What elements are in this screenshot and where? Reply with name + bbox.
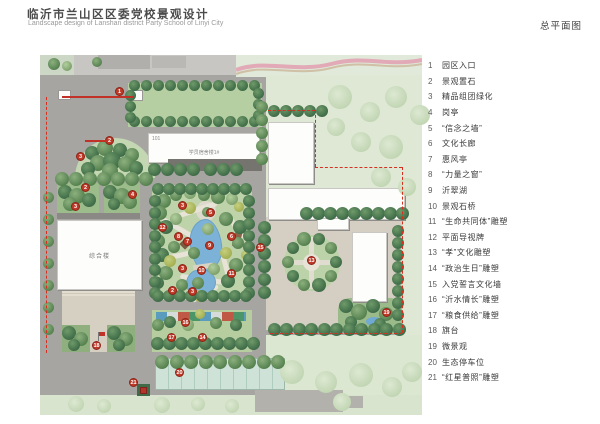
plan-marker-5: 5 — [206, 208, 215, 217]
legend-item: 10景观石桥 — [428, 198, 596, 214]
tree-icon — [189, 116, 200, 127]
tree-icon — [149, 241, 161, 253]
tree-icon — [228, 355, 242, 369]
tree-icon — [43, 236, 54, 247]
entry-red-line — [85, 140, 108, 142]
tree-icon — [165, 116, 176, 127]
tree-icon — [164, 255, 176, 267]
legend-item: 9沂翠湖 — [428, 183, 596, 199]
tree-icon — [184, 355, 198, 369]
building-comprehensive: 综合楼 — [57, 220, 142, 290]
legend-number: 1 — [428, 61, 442, 70]
tree-icon — [68, 339, 80, 351]
site-boundary — [270, 333, 402, 334]
building-east-main-wing — [317, 218, 349, 230]
tree-icon — [292, 105, 304, 117]
tree-icon — [360, 207, 373, 220]
tree-icon — [213, 116, 224, 127]
tree-icon — [125, 101, 136, 112]
legend-label: 生态停车位 — [442, 357, 485, 368]
tree-icon — [360, 102, 380, 122]
legend-number: 14 — [428, 264, 442, 273]
plan-marker-13: 13 — [307, 256, 316, 265]
entrance-gate-line — [62, 96, 134, 98]
tree-icon — [243, 276, 255, 288]
offsite-landscape-ribbon — [236, 55, 422, 77]
legend-item: 16“沂水情长”雕塑 — [428, 292, 596, 308]
legend-number: 16 — [428, 295, 442, 304]
tree-icon — [189, 80, 200, 91]
tree-icon — [199, 355, 213, 369]
tree-icon — [230, 319, 242, 331]
tree-icon — [327, 118, 345, 136]
legend-label: 平面导视牌 — [442, 232, 485, 243]
offsite-building — [255, 390, 343, 412]
legend-number: 3 — [428, 92, 442, 101]
guard-booth — [58, 90, 71, 100]
tree-icon — [125, 90, 136, 101]
tree-icon — [325, 242, 337, 254]
legend-item: 5“信念之墙” — [428, 120, 596, 136]
tree-icon — [258, 286, 271, 299]
tree-icon — [348, 207, 361, 220]
legend-item: 4岗亭 — [428, 105, 596, 121]
legend-label: “粮食供给”雕塑 — [442, 310, 499, 321]
tree-icon — [282, 256, 294, 268]
tree-icon — [154, 397, 170, 413]
site-boundary — [402, 167, 403, 333]
tree-icon — [243, 218, 255, 230]
legend-item: 7惠风亭 — [428, 152, 596, 168]
tree-icon — [258, 221, 271, 234]
tree-icon — [256, 140, 268, 152]
tree-icon — [141, 80, 152, 91]
plan-marker-18: 18 — [92, 341, 101, 350]
tree-icon — [271, 355, 285, 369]
legend-label: 惠风亭 — [442, 154, 468, 165]
legend-item: 12平面导视牌 — [428, 230, 596, 246]
legend-number: 17 — [428, 311, 442, 320]
plan-marker-3: 3 — [71, 202, 80, 211]
tree-icon — [225, 80, 236, 91]
plan-marker-14: 14 — [198, 333, 207, 342]
tree-icon — [258, 260, 271, 273]
legend-label: “政治生日”雕塑 — [442, 263, 499, 274]
plan-marker-16: 16 — [181, 318, 190, 327]
legend-label: 微景观 — [442, 341, 468, 352]
tree-icon — [148, 163, 161, 176]
tree-icon — [220, 247, 232, 259]
legend-item: 15入党誓言文化墙 — [428, 276, 596, 292]
legend-label: “力量之窗” — [442, 169, 482, 180]
tree-icon — [325, 270, 337, 282]
tree-icon — [204, 163, 217, 176]
tree-icon — [68, 396, 84, 412]
legend-number: 12 — [428, 233, 442, 242]
tree-icon — [297, 232, 311, 246]
legend-label: 景观置石 — [442, 76, 476, 87]
plan-type-label: 总平面图 — [540, 18, 582, 32]
site-boundary — [46, 97, 47, 353]
tree-icon — [153, 116, 164, 127]
building-code: 101 — [152, 136, 160, 142]
tree-icon — [280, 105, 292, 117]
tree-icon — [256, 153, 268, 165]
legend-number: 15 — [428, 280, 442, 289]
legend-number: 21 — [428, 373, 442, 382]
tree-icon — [168, 241, 180, 253]
site-boundary — [315, 167, 402, 168]
tree-icon — [43, 302, 54, 313]
tree-icon — [187, 163, 200, 176]
legend-label: “孝”文化雕塑 — [442, 247, 491, 258]
legend-number: 5 — [428, 124, 442, 133]
tree-icon — [253, 88, 264, 99]
legend-label: 精品组团绿化 — [442, 91, 493, 102]
plan-marker-11: 11 — [227, 269, 236, 278]
legend-number: 7 — [428, 155, 442, 164]
offsite-building — [152, 56, 186, 68]
legend-label: “生命共同体”雕塑 — [442, 216, 508, 227]
tree-icon — [315, 371, 337, 393]
page-subtitle: Landscape design of Lanshan district Par… — [28, 20, 223, 27]
tree-icon — [324, 207, 337, 220]
tree-icon — [111, 172, 125, 186]
legend-item: 1园区入口 — [428, 58, 596, 74]
plan-marker-3: 3 — [76, 152, 85, 161]
tree-icon — [243, 241, 255, 253]
tree-icon — [48, 58, 60, 70]
tree-icon — [256, 101, 268, 113]
tree-icon — [257, 355, 271, 369]
tree-icon — [379, 135, 403, 159]
legend-number: 9 — [428, 186, 442, 195]
plan-marker-19: 19 — [382, 308, 391, 317]
legend-number: 4 — [428, 108, 442, 117]
legend-item: 18旗台 — [428, 323, 596, 339]
legend-number: 11 — [428, 217, 442, 226]
tree-icon — [247, 337, 260, 350]
legend-panel: 1园区入口2景观置石3精品组团绿化4岗亭5“信念之墙”6文化长廊7惠风亭8“力量… — [428, 58, 596, 385]
legend-label: “沂水情长”雕塑 — [442, 294, 499, 305]
building-northeast — [268, 122, 314, 184]
tree-icon — [240, 183, 252, 195]
legend-item: 6文化长廊 — [428, 136, 596, 152]
legend-item: 2景观置石 — [428, 74, 596, 90]
tree-icon — [313, 233, 325, 245]
tree-icon — [243, 195, 255, 207]
tree-icon — [213, 355, 227, 369]
tree-icon — [129, 80, 140, 91]
plan-marker-21: 21 — [129, 378, 138, 387]
plan-marker-7: 7 — [183, 237, 192, 246]
tree-icon — [316, 105, 328, 117]
red-star-sculpture — [140, 387, 147, 394]
legend-item: 20生态停车位 — [428, 354, 596, 370]
legend-number: 13 — [428, 248, 442, 257]
tree-icon — [230, 163, 243, 176]
building-east-south — [352, 232, 387, 302]
plan-marker-10: 10 — [197, 266, 206, 275]
tree-icon — [258, 273, 271, 286]
legend-number: 18 — [428, 326, 442, 335]
plan-marker-6: 6 — [227, 232, 236, 241]
tree-icon — [242, 355, 256, 369]
building-label: 综合楼 — [58, 251, 141, 260]
tree-icon — [62, 61, 72, 71]
tree-icon — [149, 253, 161, 265]
tree-icon — [402, 362, 422, 382]
tree-icon — [208, 263, 220, 275]
legend-label: “信念之墙” — [442, 123, 482, 134]
tree-icon — [328, 85, 352, 109]
tree-icon — [43, 324, 54, 335]
tree-icon — [256, 127, 268, 139]
plan-marker-17: 17 — [167, 333, 176, 342]
tree-icon — [149, 195, 161, 207]
legend-label: 入党誓言文化墙 — [442, 279, 502, 290]
tree-icon — [300, 207, 313, 220]
tree-icon — [243, 230, 255, 242]
tree-icon — [384, 207, 397, 220]
tree-icon — [153, 80, 164, 91]
tree-icon — [82, 193, 96, 207]
tree-icon — [113, 339, 125, 351]
tree-icon — [330, 256, 342, 268]
plan-marker-8: 8 — [174, 232, 183, 241]
tree-icon — [287, 270, 299, 282]
plan-marker-15: 15 — [256, 243, 265, 252]
plan-marker-3: 3 — [178, 201, 187, 210]
tree-icon — [202, 223, 214, 235]
legend-label: 园区入口 — [442, 60, 476, 71]
tree-icon — [385, 86, 407, 108]
flag-icon — [99, 332, 105, 336]
legend-label: 旗台 — [442, 325, 459, 336]
legend-item: 17“粮食供给”雕塑 — [428, 308, 596, 324]
tree-icon — [366, 299, 380, 313]
tree-icon — [243, 253, 255, 265]
tree-icon — [213, 80, 224, 91]
tree-icon — [371, 167, 391, 187]
tree-icon — [201, 116, 212, 127]
tree-icon — [372, 207, 385, 220]
tree-icon — [211, 337, 224, 350]
tree-icon — [210, 317, 222, 329]
tree-icon — [237, 116, 248, 127]
legend-label: 沂翠湖 — [442, 185, 468, 196]
tree-icon — [55, 172, 69, 186]
legend-item: 19微景观 — [428, 339, 596, 355]
legend-item: 13“孝”文化雕塑 — [428, 245, 596, 261]
plan-marker-12: 12 — [158, 223, 167, 232]
tree-icon — [219, 212, 233, 226]
tree-icon — [43, 258, 54, 269]
plan-marker-3: 3 — [188, 287, 197, 296]
legend-number: 8 — [428, 170, 442, 179]
tree-icon — [201, 80, 212, 91]
tree-icon — [152, 319, 164, 331]
tree-icon — [298, 279, 310, 291]
building-label: 学员宿舍楼1# — [149, 149, 259, 156]
tree-icon — [149, 276, 161, 288]
tree-icon — [268, 105, 280, 117]
tree-icon — [177, 80, 188, 91]
tree-icon — [155, 355, 169, 369]
tree-icon — [217, 163, 230, 176]
plan-marker-2: 2 — [81, 183, 90, 192]
tree-icon — [177, 116, 188, 127]
tree-icon — [151, 337, 164, 350]
legend-item: 14“政治生日”雕塑 — [428, 261, 596, 277]
tree-icon — [349, 363, 373, 387]
legend-number: 2 — [428, 77, 442, 86]
tree-icon — [333, 393, 351, 411]
tree-icon — [174, 163, 187, 176]
tree-icon — [223, 337, 236, 350]
tree-icon — [312, 278, 326, 292]
tree-icon — [165, 80, 176, 91]
legend-label: 岗亭 — [442, 107, 459, 118]
tree-icon — [97, 172, 111, 186]
legend-label: “红星普照”雕塑 — [442, 372, 499, 383]
site-plan: 综合楼 101 学员宿舍楼1# 123234351287693101123151… — [40, 55, 422, 415]
tree-icon — [243, 207, 255, 219]
legend-number: 6 — [428, 139, 442, 148]
tree-icon — [195, 309, 205, 319]
tree-icon — [43, 192, 54, 203]
tree-icon — [235, 337, 248, 350]
legend-item: 11“生命共同体”雕塑 — [428, 214, 596, 230]
tree-icon — [108, 198, 120, 210]
offsite-building — [98, 55, 150, 69]
site-boundary — [315, 110, 316, 167]
tree-icon — [164, 316, 176, 328]
building-shadow — [57, 213, 140, 219]
tree-icon — [149, 207, 161, 219]
tree-icon — [312, 207, 325, 220]
plan-marker-1: 1 — [115, 87, 124, 96]
legend-item: 8“力量之窗” — [428, 167, 596, 183]
tree-icon — [336, 207, 349, 220]
legend-number: 10 — [428, 202, 442, 211]
tree-icon — [97, 399, 111, 413]
tree-icon — [161, 163, 174, 176]
tree-icon — [382, 377, 402, 397]
tree-icon — [175, 337, 188, 350]
legend-label: 文化长廊 — [442, 138, 476, 149]
tree-icon — [240, 290, 252, 302]
legend-number: 20 — [428, 358, 442, 367]
tree-icon — [410, 105, 430, 125]
tree-icon — [243, 264, 255, 276]
tree-icon — [188, 247, 200, 259]
tree-icon — [125, 172, 139, 186]
legend-item: 3精品组团绿化 — [428, 89, 596, 105]
tree-icon — [170, 355, 184, 369]
tree-icon — [237, 80, 248, 91]
tree-icon — [149, 264, 161, 276]
tree-icon — [225, 399, 239, 413]
tree-icon — [92, 57, 102, 67]
tree-icon — [351, 132, 371, 152]
tree-icon — [125, 112, 136, 123]
legend-label: 景观石桥 — [442, 201, 476, 212]
legend-number: 19 — [428, 342, 442, 351]
plan-marker-3: 3 — [178, 264, 187, 273]
tree-icon — [225, 116, 236, 127]
plan-marker-2: 2 — [168, 286, 177, 295]
site-boundary — [268, 110, 315, 111]
tree-icon — [256, 114, 268, 126]
tree-icon — [287, 242, 299, 254]
tree-icon — [43, 214, 54, 225]
pink-ribbon-icon — [236, 55, 422, 77]
tree-icon — [191, 397, 205, 411]
tree-icon — [141, 116, 152, 127]
legend-item: 21“红星普照”雕塑 — [428, 370, 596, 386]
plan-marker-20: 20 — [175, 368, 184, 377]
plan-marker-9: 9 — [205, 241, 214, 250]
tree-icon — [398, 178, 416, 196]
tree-icon — [43, 280, 54, 291]
tree-icon — [170, 213, 182, 225]
plan-marker-4: 4 — [128, 190, 137, 199]
